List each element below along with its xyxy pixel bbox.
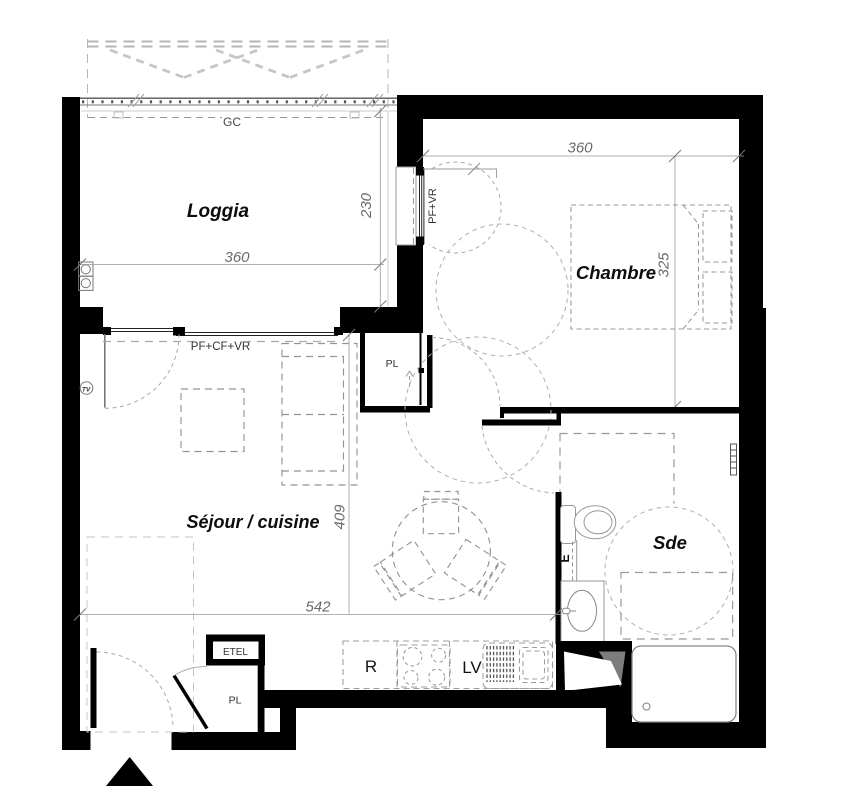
svg-text:360: 360 [224,249,250,266]
svg-text:R: R [365,657,377,676]
svg-text:GC: GC [223,115,241,129]
svg-text:Sde: Sde [653,532,687,553]
svg-text:Loggia: Loggia [187,201,250,222]
svg-text:409: 409 [332,504,349,530]
svg-text:325: 325 [656,252,673,278]
svg-text:360: 360 [567,140,593,157]
svg-text:LV: LV [462,658,482,677]
svg-text:ETEL: ETEL [223,647,248,658]
svg-text:230: 230 [358,192,375,219]
svg-text:E: E [558,554,572,562]
svg-text:TV: TV [82,387,91,394]
svg-text:542: 542 [305,599,331,616]
svg-text:PL: PL [229,695,242,707]
svg-text:PL: PL [386,358,399,370]
svg-text:PF+CF+VR: PF+CF+VR [191,341,250,353]
svg-text:Séjour / cuisine: Séjour / cuisine [186,512,319,532]
svg-text:PF+VR: PF+VR [427,188,439,224]
svg-text:Chambre: Chambre [576,262,656,283]
